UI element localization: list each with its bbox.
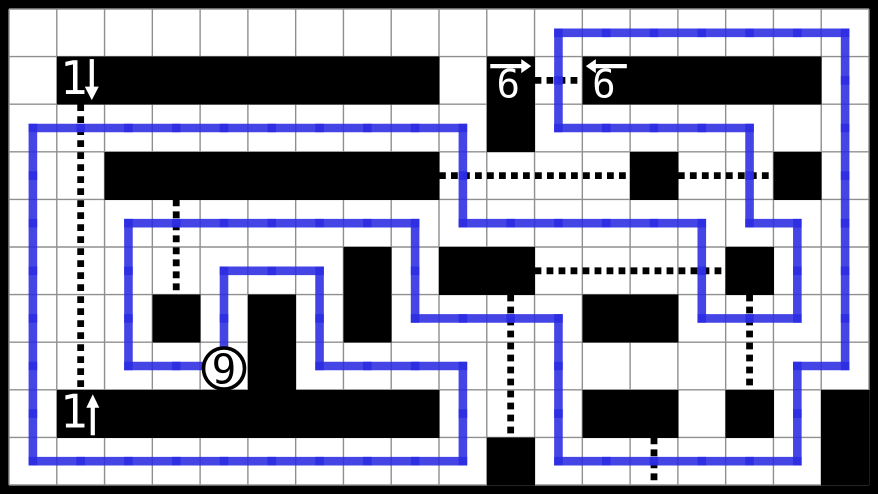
shaded-cell-r6c13[interactable] <box>630 295 678 343</box>
shaded-cell-r3c13[interactable] <box>630 152 678 200</box>
shaded-cell-r8c17[interactable] <box>821 390 869 438</box>
shaded-cell-r1c8[interactable] <box>391 57 439 105</box>
shaded-cell-r2c10[interactable] <box>487 104 535 152</box>
shaded-cell-r3c2[interactable] <box>105 152 153 200</box>
shaded-cell-r5c15[interactable] <box>726 247 774 295</box>
shaded-cell-r3c4[interactable] <box>200 152 248 200</box>
shaded-cell-r9c10[interactable] <box>487 437 535 485</box>
shaded-cell-r5c7[interactable] <box>343 247 391 295</box>
clue-number: 1 <box>60 51 88 105</box>
shaded-cell-r3c8[interactable] <box>391 152 439 200</box>
shaded-cell-r1c6[interactable] <box>296 57 344 105</box>
shaded-cell-r8c8[interactable] <box>391 390 439 438</box>
shaded-cell-r6c12[interactable] <box>582 295 630 343</box>
shaded-cell-r8c15[interactable] <box>726 390 774 438</box>
shaded-cell-r9c17[interactable] <box>821 437 869 485</box>
clue-number: 1 <box>60 384 88 438</box>
puzzle-canvas[interactable]: 16619 <box>0 0 878 494</box>
arrow-clue-1-down: 1 <box>60 51 99 105</box>
shaded-cell-r1c15[interactable] <box>726 57 774 105</box>
shaded-cell-r5c10[interactable] <box>487 247 535 295</box>
circle-clue-number: 9 <box>212 346 237 394</box>
shaded-cell-r8c6[interactable] <box>296 390 344 438</box>
shaded-cell-r1c7[interactable] <box>343 57 391 105</box>
shaded-cell-r1c4[interactable] <box>200 57 248 105</box>
shaded-cell-r6c7[interactable] <box>343 295 391 343</box>
shaded-cell-r8c7[interactable] <box>343 390 391 438</box>
shaded-cell-r8c13[interactable] <box>630 390 678 438</box>
shaded-cell-r1c14[interactable] <box>678 57 726 105</box>
shaded-cell-r6c3[interactable] <box>152 295 200 343</box>
yajilin-puzzle-board: 16619 <box>0 0 878 494</box>
shaded-cell-r3c5[interactable] <box>248 152 296 200</box>
shaded-cell-r8c2[interactable] <box>105 390 153 438</box>
clue-number: 6 <box>497 63 520 108</box>
shaded-cell-r3c16[interactable] <box>773 152 821 200</box>
shaded-cell-r7c5[interactable] <box>248 342 296 390</box>
shaded-cell-r1c3[interactable] <box>152 57 200 105</box>
shaded-cell-r3c6[interactable] <box>296 152 344 200</box>
shaded-cell-r5c9[interactable] <box>439 247 487 295</box>
shaded-cell-r1c5[interactable] <box>248 57 296 105</box>
shaded-cell-r6c5[interactable] <box>248 295 296 343</box>
shaded-cell-r8c5[interactable] <box>248 390 296 438</box>
shaded-cell-r8c4[interactable] <box>200 390 248 438</box>
shaded-cell-r1c2[interactable] <box>105 57 153 105</box>
shaded-cell-r3c3[interactable] <box>152 152 200 200</box>
shaded-cell-r8c3[interactable] <box>152 390 200 438</box>
shaded-cell-r1c13[interactable] <box>630 57 678 105</box>
shaded-cell-r1c16[interactable] <box>773 57 821 105</box>
shaded-cell-r3c7[interactable] <box>343 152 391 200</box>
shaded-cell-r8c12[interactable] <box>582 390 630 438</box>
